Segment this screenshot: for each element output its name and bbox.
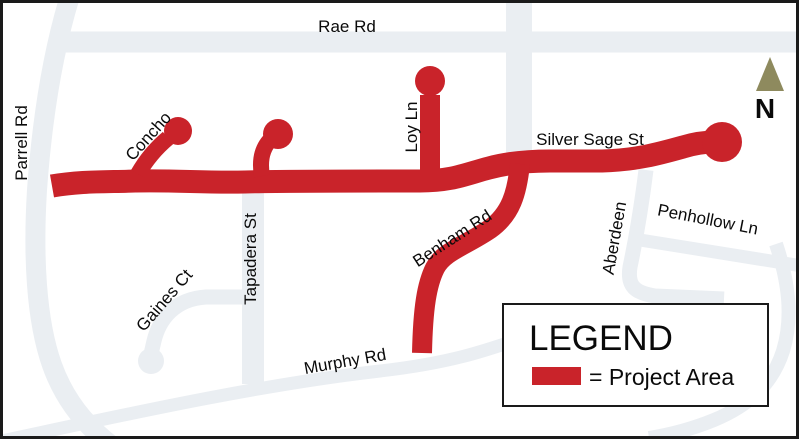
- label-rae-rd: Rae Rd: [318, 17, 376, 36]
- road-parrell-rd: [35, 0, 112, 439]
- project-area-map: Rae Rd Parrell Rd Concho Loy Ln Silver S…: [0, 0, 799, 439]
- north-arrow-label: N: [755, 93, 775, 124]
- gaines-ct-cul-de-sac: [138, 348, 164, 374]
- label-loy-ln: Loy Ln: [402, 101, 421, 152]
- north-arrow-icon: [756, 57, 784, 91]
- legend-project-area-swatch: [532, 367, 581, 385]
- label-penhollow-ln: Penhollow Ln: [656, 200, 760, 238]
- legend-title: LEGEND: [529, 319, 673, 358]
- legend: LEGEND = Project Area: [503, 304, 768, 406]
- label-tapadera-st: Tapadera St: [241, 213, 260, 305]
- label-parrell-rd: Parrell Rd: [12, 105, 31, 181]
- project-silver-sage-end-ball: [702, 122, 742, 162]
- project-loy-ln-cul-de-sac: [415, 66, 445, 96]
- legend-project-area-label: = Project Area: [589, 364, 734, 390]
- label-silver-sage-st: Silver Sage St: [536, 130, 644, 149]
- north-arrow: N: [755, 57, 784, 124]
- project-spur-cul-de-sac: [263, 119, 293, 149]
